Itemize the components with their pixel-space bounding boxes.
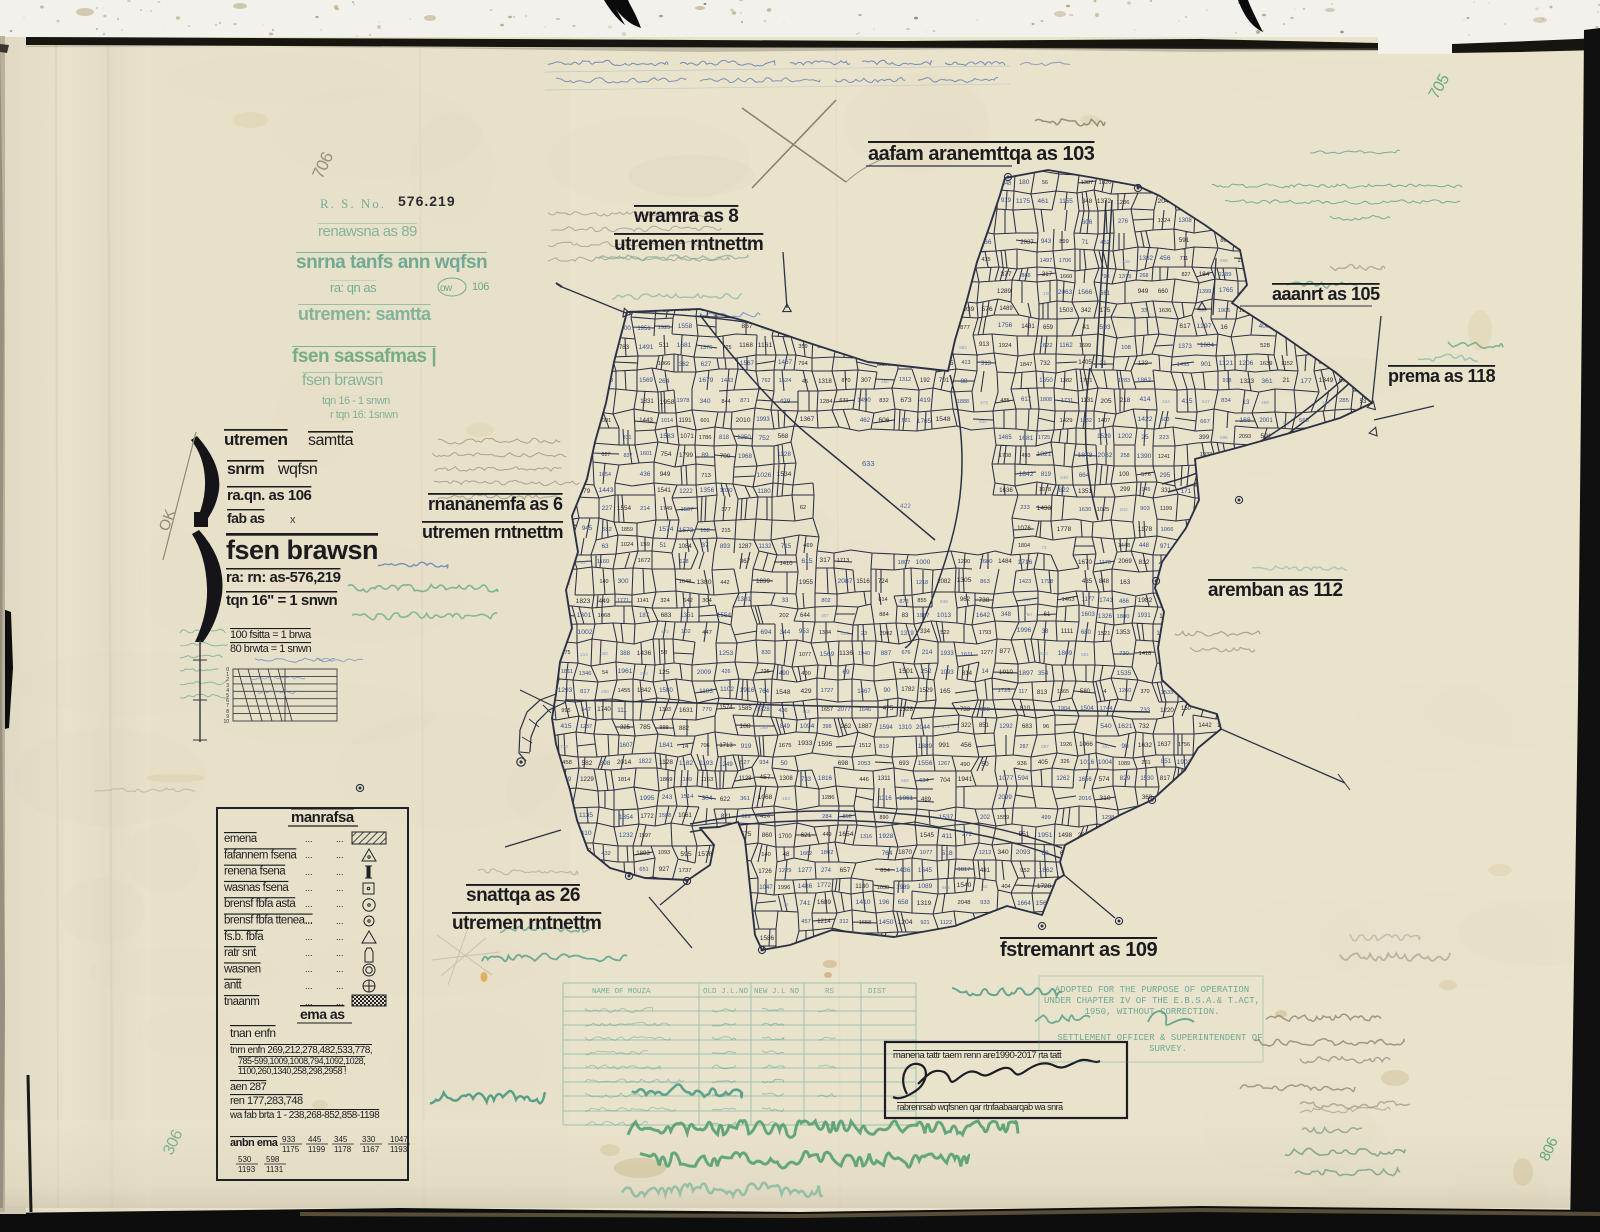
- svg-text:1180: 1180: [757, 488, 771, 495]
- svg-text:1128: 1128: [777, 451, 791, 458]
- svg-text:25: 25: [1141, 434, 1149, 441]
- svg-text:1286: 1286: [821, 795, 835, 801]
- svg-text:manrafsa: manrafsa: [291, 809, 355, 826]
- svg-text:1807: 1807: [898, 560, 911, 566]
- svg-text:1093: 1093: [940, 670, 954, 676]
- svg-text:1728: 1728: [756, 707, 770, 713]
- svg-text:1632: 1632: [1138, 742, 1153, 749]
- svg-text:446: 446: [859, 777, 869, 783]
- svg-text:62: 62: [800, 505, 806, 511]
- svg-text:1250: 1250: [737, 434, 751, 441]
- svg-text:1680: 1680: [979, 559, 993, 565]
- svg-text:582: 582: [582, 760, 593, 767]
- svg-text:1319: 1319: [917, 900, 932, 907]
- svg-text:1249: 1249: [719, 762, 733, 768]
- svg-text:1467: 1467: [857, 688, 871, 695]
- svg-text:1167: 1167: [362, 1145, 380, 1154]
- svg-text:...: ...: [305, 916, 313, 926]
- svg-text:1862: 1862: [1039, 867, 1054, 874]
- svg-text:429: 429: [800, 688, 811, 695]
- svg-text:111: 111: [617, 707, 627, 714]
- svg-text:63: 63: [601, 543, 609, 550]
- svg-text:1554: 1554: [717, 612, 732, 619]
- svg-text:794: 794: [798, 361, 808, 367]
- svg-text:361: 361: [1261, 378, 1272, 385]
- svg-text:877: 877: [999, 648, 1010, 655]
- svg-text:322: 322: [961, 722, 972, 729]
- svg-text:122: 122: [1138, 360, 1149, 367]
- svg-text:emena: emena: [224, 833, 258, 845]
- svg-text:1193: 1193: [699, 760, 713, 767]
- svg-text:458: 458: [562, 760, 573, 766]
- svg-text:445: 445: [308, 1135, 322, 1144]
- svg-text:817: 817: [580, 689, 590, 695]
- svg-text:184: 184: [1199, 271, 1210, 278]
- svg-text:ratr snt: ratr snt: [224, 947, 257, 959]
- svg-text:330: 330: [362, 1135, 376, 1144]
- svg-text:1847: 1847: [1020, 362, 1033, 368]
- svg-text:samtta: samtta: [308, 432, 354, 449]
- svg-text:2014: 2014: [617, 759, 632, 766]
- svg-text:1897: 1897: [1019, 670, 1034, 677]
- svg-text:1367: 1367: [800, 416, 815, 423]
- svg-text:485: 485: [1000, 398, 1009, 404]
- svg-text:581: 581: [902, 418, 911, 424]
- svg-text:1030: 1030: [877, 885, 889, 891]
- svg-text:...: ...: [336, 981, 344, 991]
- svg-text:snrm: snrm: [227, 461, 264, 478]
- svg-text:568: 568: [778, 433, 789, 440]
- svg-text:1928: 1928: [879, 833, 894, 840]
- svg-text:13: 13: [1243, 399, 1250, 406]
- svg-text:1597: 1597: [639, 833, 651, 839]
- svg-text:177: 177: [1300, 378, 1311, 385]
- svg-text:1862: 1862: [1137, 377, 1152, 384]
- svg-text:404: 404: [1001, 884, 1010, 890]
- svg-text:945: 945: [582, 525, 593, 532]
- svg-text:325: 325: [620, 725, 631, 731]
- svg-text:1993: 1993: [756, 417, 770, 423]
- svg-text:1910: 1910: [999, 669, 1014, 676]
- svg-text:1940: 1940: [858, 651, 870, 657]
- svg-text:340: 340: [699, 398, 710, 405]
- svg-text:188: 188: [739, 723, 750, 730]
- svg-text:713: 713: [701, 473, 712, 479]
- svg-text:1664: 1664: [1017, 900, 1031, 907]
- svg-text:1262: 1262: [1056, 776, 1070, 782]
- svg-text:1708: 1708: [999, 453, 1011, 459]
- svg-text:582: 582: [602, 527, 612, 533]
- svg-text:1728: 1728: [1037, 883, 1052, 890]
- svg-text:1656: 1656: [1078, 777, 1092, 783]
- svg-text:1637: 1637: [1157, 741, 1171, 748]
- svg-text:933: 933: [282, 1135, 296, 1144]
- svg-text:1077: 1077: [799, 652, 811, 658]
- svg-text:574: 574: [1099, 776, 1110, 783]
- svg-text:1443: 1443: [599, 487, 614, 494]
- svg-text:415: 415: [560, 723, 572, 730]
- svg-text:405: 405: [1038, 759, 1049, 766]
- svg-text:1951: 1951: [1038, 832, 1053, 839]
- svg-text:457: 457: [759, 774, 770, 781]
- svg-text:1204: 1204: [897, 919, 912, 926]
- svg-text:1436: 1436: [637, 650, 652, 657]
- svg-text:fstremanrt as 109: fstremanrt as 109: [1000, 939, 1158, 961]
- svg-text:1507: 1507: [680, 507, 693, 513]
- svg-text:724: 724: [878, 578, 889, 585]
- svg-text:725: 725: [760, 669, 769, 675]
- svg-text:1089: 1089: [918, 883, 933, 890]
- svg-text:182: 182: [700, 528, 710, 534]
- svg-text:1916: 1916: [740, 687, 755, 694]
- svg-text:565: 565: [1299, 418, 1309, 424]
- svg-text:830: 830: [761, 650, 770, 656]
- svg-text:1566: 1566: [1078, 289, 1093, 296]
- svg-text:1183: 1183: [699, 688, 713, 695]
- svg-text:1996: 1996: [778, 885, 791, 891]
- svg-text:1175: 1175: [1016, 198, 1031, 205]
- svg-text:...: ...: [305, 981, 313, 991]
- svg-text:1607: 1607: [619, 743, 633, 749]
- svg-text:tnan enfn: tnan enfn: [230, 1026, 276, 1040]
- svg-text:1463: 1463: [1062, 597, 1075, 603]
- svg-text:10: 10: [223, 719, 229, 725]
- svg-text:1657: 1657: [821, 707, 833, 713]
- svg-text:877: 877: [960, 325, 970, 331]
- svg-text:623: 623: [841, 631, 849, 636]
- svg-text:21: 21: [1282, 377, 1290, 384]
- svg-text:1630: 1630: [1079, 507, 1091, 513]
- svg-text:890: 890: [880, 815, 889, 821]
- svg-text:304: 304: [702, 795, 713, 802]
- svg-text:4: 4: [1103, 689, 1106, 695]
- svg-text:1161: 1161: [758, 342, 773, 349]
- svg-text:...: ...: [336, 867, 344, 877]
- svg-text:528: 528: [1260, 343, 1271, 349]
- svg-text:1066: 1066: [658, 361, 670, 367]
- svg-text:1603: 1603: [1081, 611, 1095, 618]
- svg-text:117: 117: [1019, 689, 1028, 695]
- svg-text:348: 348: [1001, 611, 1012, 618]
- svg-text:2062: 2062: [1098, 452, 1113, 459]
- svg-text:1066: 1066: [1079, 741, 1093, 748]
- svg-text:50: 50: [780, 760, 788, 767]
- svg-text:1689: 1689: [817, 899, 832, 906]
- svg-text:733: 733: [960, 706, 971, 713]
- svg-text:1380: 1380: [697, 579, 712, 586]
- svg-text:wramra as 8: wramra as 8: [633, 206, 738, 227]
- svg-text:388: 388: [620, 650, 631, 657]
- svg-text:1548: 1548: [776, 689, 791, 696]
- svg-text:638: 638: [940, 599, 948, 604]
- svg-text:1061: 1061: [899, 795, 914, 802]
- svg-text:733: 733: [801, 777, 812, 783]
- svg-text:918: 918: [1223, 378, 1232, 384]
- svg-text:741: 741: [799, 900, 810, 907]
- svg-text:ow: ow: [440, 283, 453, 294]
- svg-text:1639: 1639: [1260, 361, 1273, 367]
- svg-text:606: 606: [878, 417, 889, 424]
- svg-text:1287: 1287: [738, 544, 752, 550]
- svg-text:1094: 1094: [800, 723, 815, 730]
- svg-text:utremen: samtta: utremen: samtta: [298, 304, 432, 324]
- svg-text:893: 893: [720, 543, 731, 550]
- svg-text:1077: 1077: [999, 775, 1014, 782]
- svg-text:770: 770: [702, 707, 712, 713]
- svg-text:1799: 1799: [679, 452, 694, 459]
- svg-text:1141: 1141: [637, 598, 649, 604]
- svg-text:1514: 1514: [681, 794, 695, 800]
- svg-text:1569: 1569: [820, 651, 835, 658]
- svg-text:814: 814: [878, 597, 887, 603]
- svg-text:429: 429: [780, 398, 791, 405]
- svg-text:913: 913: [979, 341, 990, 348]
- svg-text:522: 522: [940, 630, 949, 636]
- svg-text:...: ...: [336, 932, 344, 942]
- svg-text:1308: 1308: [1178, 217, 1192, 224]
- svg-text:676: 676: [902, 650, 911, 656]
- svg-text:1765: 1765: [917, 418, 932, 425]
- svg-text:1554: 1554: [617, 505, 632, 512]
- svg-text:37: 37: [701, 542, 709, 549]
- svg-text:489: 489: [921, 797, 932, 803]
- svg-text:...: ...: [336, 948, 344, 958]
- svg-text:821: 821: [721, 813, 732, 820]
- svg-text:ra: rn: as-576,219: ra: rn: as-576,219: [226, 569, 341, 586]
- svg-text:754: 754: [660, 451, 671, 458]
- svg-text:664: 664: [1079, 472, 1090, 479]
- svg-text:72: 72: [1041, 545, 1047, 550]
- svg-text:...: ...: [305, 867, 313, 877]
- svg-text:2044: 2044: [916, 724, 931, 731]
- svg-text:1068: 1068: [758, 794, 773, 801]
- svg-text:466: 466: [1119, 599, 1130, 605]
- svg-text:1771: 1771: [617, 598, 629, 604]
- svg-text:175: 175: [1100, 307, 1111, 314]
- svg-text:1533: 1533: [1161, 690, 1173, 696]
- svg-text:1131: 1131: [266, 1165, 284, 1174]
- svg-text:1177: 1177: [1082, 597, 1096, 603]
- svg-text:1646: 1646: [859, 707, 871, 713]
- svg-text:fab as: fab as: [227, 510, 265, 526]
- svg-text:...: ...: [336, 834, 344, 844]
- svg-text:1650: 1650: [1039, 377, 1053, 384]
- svg-text:165: 165: [939, 688, 950, 695]
- svg-text:481: 481: [980, 867, 991, 874]
- svg-text:1793: 1793: [979, 630, 991, 636]
- svg-text:1679: 1679: [699, 377, 714, 384]
- svg-text:1293: 1293: [558, 687, 573, 694]
- svg-text:361: 361: [740, 796, 750, 802]
- svg-text:411: 411: [942, 833, 953, 840]
- svg-text:1076: 1076: [1017, 525, 1031, 532]
- svg-text:919: 919: [741, 743, 752, 750]
- svg-text:16: 16: [1220, 324, 1228, 331]
- svg-text:295: 295: [1160, 472, 1171, 479]
- svg-text:903: 903: [1140, 506, 1150, 512]
- svg-text:1924: 1924: [998, 343, 1012, 349]
- svg-text:473: 473: [661, 629, 669, 634]
- svg-text:10: 10: [1282, 420, 1288, 425]
- svg-text:660: 660: [1158, 288, 1169, 295]
- svg-text:895: 895: [1220, 435, 1228, 440]
- svg-text:fsen brawsn: fsen brawsn: [302, 372, 383, 389]
- svg-text:214: 214: [922, 649, 933, 656]
- svg-text:527: 527: [740, 760, 750, 766]
- svg-text:2077: 2077: [837, 707, 851, 713]
- svg-text:704: 704: [940, 777, 951, 784]
- svg-text:1889: 1889: [918, 743, 933, 750]
- svg-text:243: 243: [662, 794, 673, 801]
- svg-text:654: 654: [880, 868, 891, 874]
- svg-text:205: 205: [1100, 398, 1111, 405]
- svg-text:1631: 1631: [679, 707, 694, 714]
- svg-text:752: 752: [758, 435, 769, 442]
- svg-text:1025: 1025: [1097, 507, 1110, 513]
- svg-text:274: 274: [821, 868, 832, 874]
- svg-text:...: ...: [336, 850, 344, 860]
- svg-text:1316: 1316: [860, 834, 872, 840]
- svg-text:1093: 1093: [658, 850, 670, 856]
- svg-text:1598: 1598: [659, 813, 672, 819]
- svg-text:1749: 1749: [660, 506, 672, 512]
- svg-text:934: 934: [759, 760, 769, 766]
- svg-text:OLD J.L.NO: OLD J.L.NO: [703, 988, 749, 996]
- svg-text:1512: 1512: [859, 743, 872, 749]
- svg-text:1725: 1725: [998, 688, 1011, 694]
- svg-text:1699: 1699: [1079, 343, 1091, 349]
- svg-text:661: 661: [1100, 291, 1111, 297]
- svg-text:1958: 1958: [659, 399, 674, 406]
- svg-text:1982: 1982: [1138, 597, 1153, 604]
- svg-text:1061: 1061: [678, 812, 692, 819]
- svg-text:153: 153: [782, 796, 790, 801]
- svg-text:1013: 1013: [937, 612, 952, 619]
- svg-text:1431: 1431: [1021, 323, 1035, 330]
- svg-text:644: 644: [800, 613, 811, 619]
- svg-text:693: 693: [899, 760, 910, 767]
- svg-text:1267: 1267: [938, 761, 950, 767]
- svg-text:1996: 1996: [1017, 627, 1032, 634]
- svg-text:1662: 1662: [800, 851, 813, 857]
- svg-text:2053: 2053: [857, 761, 871, 767]
- svg-text:499: 499: [1041, 815, 1051, 821]
- svg-text:2002: 2002: [880, 631, 893, 637]
- svg-text:683: 683: [1022, 723, 1033, 730]
- svg-text:456: 456: [1159, 255, 1170, 262]
- svg-text:2037: 2037: [1020, 239, 1034, 246]
- svg-text:fafannem fsena: fafannem fsena: [224, 849, 297, 861]
- svg-text:2016: 2016: [1078, 796, 1092, 802]
- svg-text:1136: 1136: [839, 650, 853, 657]
- svg-text:61: 61: [1044, 611, 1051, 618]
- svg-text:762: 762: [761, 378, 770, 384]
- svg-text:1681: 1681: [677, 342, 692, 349]
- svg-text:aen 287: aen 287: [230, 1081, 267, 1093]
- svg-text:69: 69: [1041, 850, 1049, 857]
- svg-text:1312: 1312: [899, 377, 911, 383]
- svg-text:461: 461: [1037, 198, 1049, 205]
- svg-text:1756: 1756: [1178, 742, 1190, 748]
- svg-text:1955: 1955: [799, 579, 814, 586]
- svg-text:1583: 1583: [659, 433, 674, 440]
- svg-text:868: 868: [1021, 273, 1030, 279]
- svg-text:304: 304: [702, 598, 712, 604]
- svg-text:870: 870: [841, 378, 850, 384]
- svg-text:882: 882: [679, 726, 690, 732]
- svg-text:299: 299: [1120, 486, 1131, 493]
- svg-text:1725: 1725: [1038, 435, 1050, 441]
- svg-text:700: 700: [720, 453, 731, 460]
- svg-text:1495: 1495: [1177, 362, 1190, 368]
- svg-text:1595: 1595: [818, 741, 833, 748]
- svg-text:1433: 1433: [1037, 505, 1052, 512]
- svg-text:90: 90: [883, 687, 891, 694]
- svg-text:1121: 1121: [1219, 360, 1234, 367]
- svg-text:842: 842: [1120, 507, 1128, 512]
- svg-text:316: 316: [1122, 259, 1130, 264]
- svg-text:326: 326: [1060, 759, 1069, 765]
- svg-text:1989: 1989: [896, 884, 910, 891]
- svg-text:1636: 1636: [999, 487, 1013, 494]
- svg-text:414: 414: [1139, 396, 1150, 403]
- svg-text:317: 317: [819, 557, 831, 564]
- svg-text:125: 125: [658, 669, 669, 676]
- svg-text:1809: 1809: [1058, 650, 1073, 657]
- svg-text:436: 436: [778, 708, 787, 714]
- svg-text:667: 667: [1200, 419, 1210, 425]
- svg-text:1066: 1066: [1160, 527, 1174, 533]
- svg-text:1978: 1978: [677, 398, 690, 404]
- svg-text:1016: 1016: [1080, 759, 1095, 766]
- svg-text:1384: 1384: [819, 630, 831, 636]
- svg-text:848: 848: [1099, 578, 1110, 585]
- svg-text:1128: 1128: [738, 775, 752, 782]
- svg-text:511: 511: [1023, 597, 1031, 602]
- svg-text:1987: 1987: [917, 613, 930, 619]
- svg-text:1068: 1068: [598, 613, 611, 619]
- svg-text:634: 634: [919, 778, 929, 784]
- svg-text:41: 41: [1082, 324, 1090, 331]
- svg-text:442: 442: [720, 580, 729, 586]
- svg-text:1376: 1376: [700, 345, 712, 351]
- svg-text:490: 490: [779, 670, 790, 677]
- svg-text:783: 783: [619, 344, 630, 351]
- svg-text:694: 694: [760, 629, 771, 636]
- svg-text:1220: 1220: [1160, 707, 1174, 714]
- svg-text:1324: 1324: [1158, 218, 1171, 224]
- svg-text:ren 177,283,748: ren 177,283,748: [230, 1095, 303, 1107]
- svg-text:1573: 1573: [679, 527, 694, 534]
- svg-text:285: 285: [1339, 398, 1350, 404]
- svg-text:48: 48: [783, 851, 790, 858]
- svg-text:rabrenrsab wqfsnen qar rtnfaab: rabrenrsab wqfsnen qar rtnfaabaarqab wa …: [897, 1102, 1063, 1112]
- svg-text:1354: 1354: [619, 814, 634, 821]
- svg-text:1193: 1193: [238, 1165, 256, 1174]
- svg-text:80 brwta = 1 snwn: 80 brwta = 1 snwn: [230, 643, 311, 655]
- svg-text:1393: 1393: [659, 707, 671, 713]
- svg-text:1297: 1297: [1196, 323, 1211, 330]
- svg-text:300: 300: [617, 578, 628, 585]
- svg-text:426: 426: [722, 669, 731, 675]
- svg-text:949: 949: [660, 471, 671, 478]
- svg-text:renena fsena: renena fsena: [224, 866, 286, 878]
- svg-text:370: 370: [1140, 689, 1149, 695]
- svg-text:159: 159: [640, 542, 650, 548]
- svg-text:359: 359: [798, 344, 807, 350]
- svg-text:252: 252: [920, 668, 931, 675]
- svg-text:785: 785: [639, 724, 651, 731]
